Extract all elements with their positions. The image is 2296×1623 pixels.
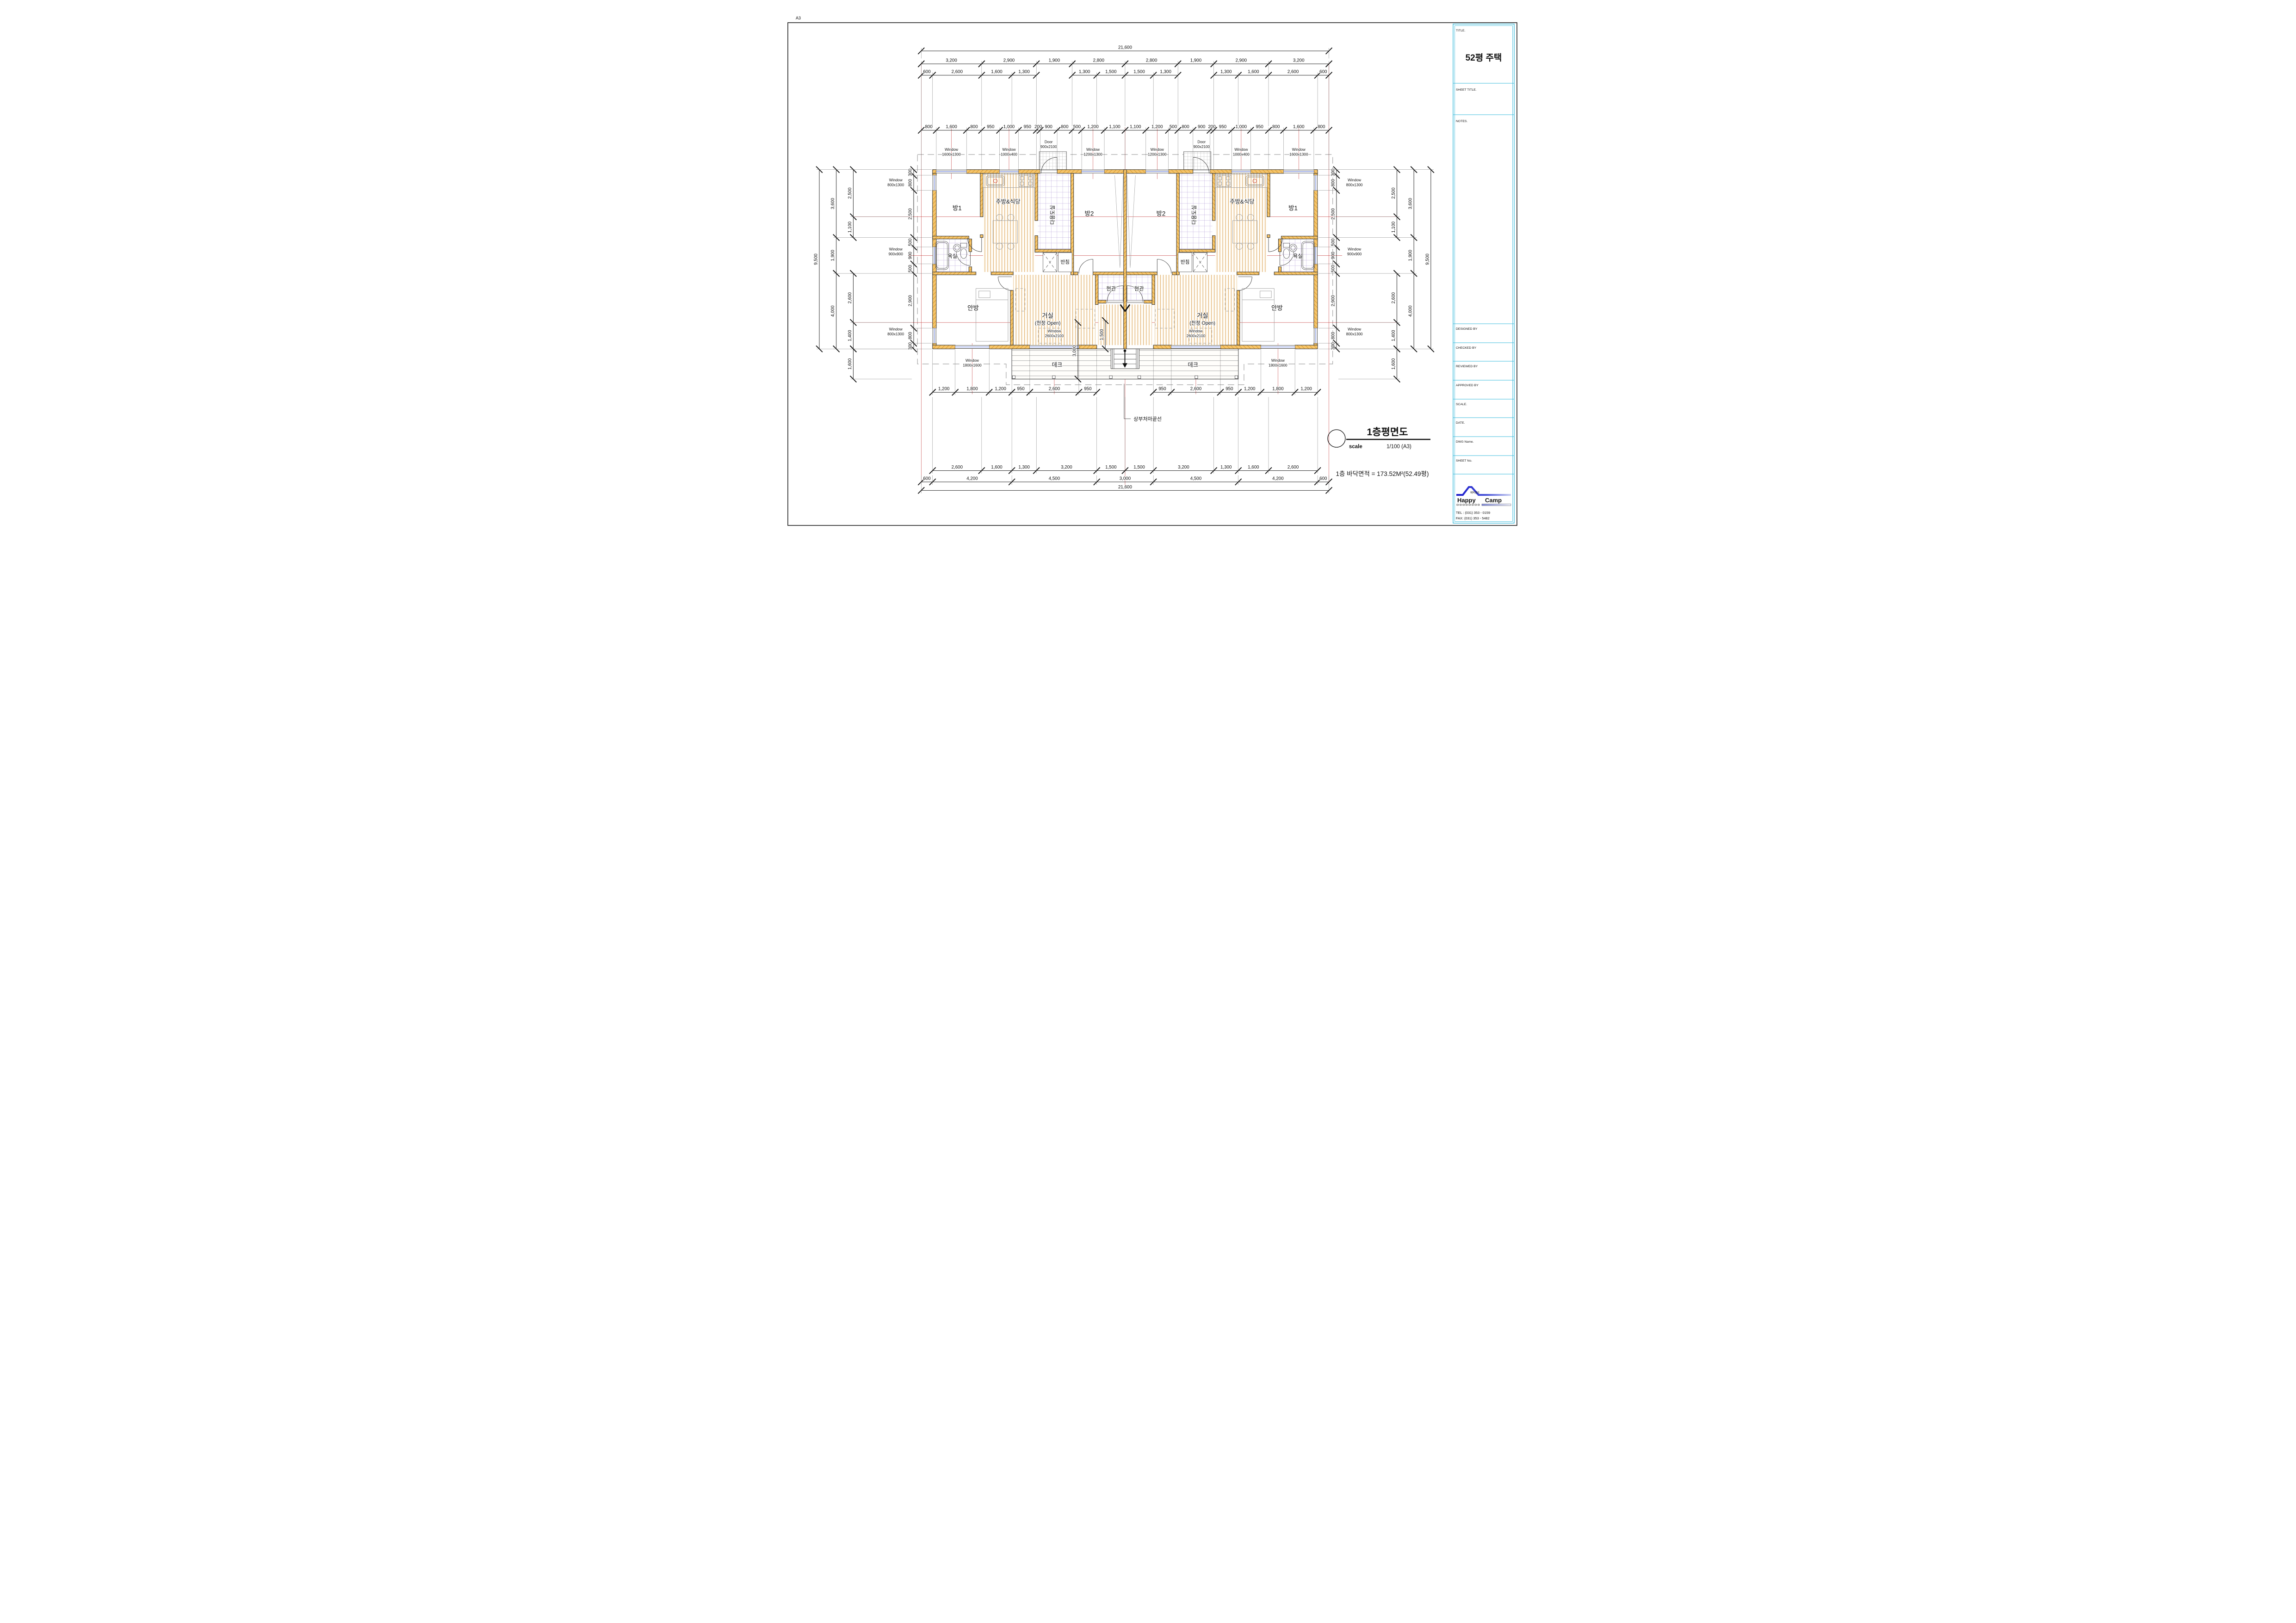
dim-label: 1,600 <box>946 124 957 130</box>
dim-label: 800 <box>1318 124 1325 130</box>
dim-label: 3,200 <box>1061 465 1072 470</box>
dim-label: 2,500 <box>1391 187 1396 199</box>
dim-label: 800 <box>970 124 978 130</box>
plan-label: 현관 <box>1106 286 1116 292</box>
dim-label: 1,600 <box>848 358 853 370</box>
plan-label: Window <box>1189 329 1202 333</box>
plan-label: 800x1300 <box>1346 183 1363 187</box>
plan-label: Window <box>945 148 958 152</box>
paper-size-label: A3 <box>796 16 801 20</box>
plan-label: 현관 <box>1134 286 1144 292</box>
dim-row: 21,600 <box>918 484 1332 494</box>
dim-label: 300 <box>908 168 913 176</box>
dim-label: 1,100 <box>1109 124 1120 130</box>
dim-label: 1,300 <box>1220 465 1232 470</box>
logo-kr: 해피캠프 <box>1470 491 1479 494</box>
dim-label: 300 <box>908 342 913 350</box>
plan-label: Window <box>1234 148 1248 152</box>
deck <box>1012 349 1238 379</box>
dim-label: 800 <box>1061 124 1069 130</box>
plan-label: 2600x2100 <box>1187 334 1206 338</box>
dim-label: 2,600 <box>848 292 853 303</box>
dim-label: 1,600 <box>1293 124 1305 130</box>
plan-label: 방2 <box>1157 210 1166 217</box>
sheet-no-label: SHEET No. <box>1456 459 1472 463</box>
reviewed-by-label: REVIEWED BY <box>1456 365 1478 368</box>
dim-label: 600 <box>1319 69 1327 74</box>
dim-label: 800 <box>1182 124 1189 130</box>
back-landing <box>1039 152 1066 170</box>
plan-label: 거실 <box>1042 312 1053 319</box>
dim-row: 2,5001,100 <box>1338 167 1400 241</box>
dim-row: 1,3001,5001,5001,300 <box>1069 69 1181 126</box>
plan-label: Window <box>1292 148 1306 152</box>
plan-label: Window <box>889 178 903 182</box>
dim-label: 800 <box>1272 124 1280 130</box>
dim-label: 2,600 <box>952 465 963 470</box>
dim-label: 2,600 <box>1287 69 1299 74</box>
dim-row: 1,600 <box>1338 346 1400 382</box>
plan-label: Window <box>1271 358 1285 363</box>
plan-title: 1층평면도 <box>1367 427 1408 438</box>
plan-label: 욕실 <box>947 253 957 259</box>
dim-label: 2,900 <box>908 295 913 306</box>
plan-label: 1000x400 <box>1233 153 1250 157</box>
dim-label: 2,900 <box>1236 58 1247 63</box>
plan-label: Door <box>1197 140 1206 144</box>
plan-label: Window <box>1047 329 1061 333</box>
dim-label: 500 <box>1331 238 1336 246</box>
designed-by-label: DESIGNED BY <box>1456 327 1478 331</box>
logo-dashes <box>1457 504 1479 506</box>
dim-label: 800 <box>1331 332 1336 339</box>
dim-label: 2,800 <box>1146 58 1157 63</box>
dim-label: 1,100 <box>848 221 853 233</box>
dim-label: 2,600 <box>1287 465 1299 470</box>
dim-label: 1,200 <box>995 387 1006 392</box>
dim-label: 950 <box>1225 387 1233 392</box>
dwg-name-label: DWG Name. <box>1456 440 1474 444</box>
dim-label: 950 <box>987 124 995 130</box>
plan-label: Window <box>889 327 903 331</box>
plan-label: 다용도실 <box>1191 205 1197 225</box>
dim-label: 4,500 <box>1190 476 1202 481</box>
plan-label: 주방&식당 <box>996 198 1020 205</box>
dim-label: 4,200 <box>1272 476 1284 481</box>
unit-right <box>1125 152 1318 349</box>
dim-label: 200 <box>1208 124 1216 130</box>
plan-label: 900x900 <box>1347 252 1362 256</box>
kitchen-floor <box>983 173 1035 272</box>
scale-value: 1/100 (A3) <box>1386 444 1411 450</box>
plan-label: 1000x400 <box>1001 153 1017 157</box>
dim-label: 2,600 <box>1190 387 1202 392</box>
dim-label: 1,900 <box>1049 58 1060 63</box>
sheet-title-label: SHEET TITLE. <box>1456 88 1477 92</box>
plan-label: 방1 <box>1288 204 1298 211</box>
dim-label: 1,300 <box>1018 69 1030 74</box>
date-row-label: DATE. <box>1456 421 1465 425</box>
checked-by-label: CHECKED BY <box>1456 346 1477 350</box>
dim-label: 1,600 <box>991 69 1003 74</box>
dim-label: 2,900 <box>1331 295 1336 306</box>
plan-label: Window <box>1348 247 1361 251</box>
dim-label: 3,200 <box>1178 465 1189 470</box>
dim-label: 1,900 <box>1190 58 1202 63</box>
plan-label: 방2 <box>1084 210 1094 217</box>
dim-label: 2,600 <box>952 69 963 74</box>
dim-label: 1,200 <box>938 387 950 392</box>
dim-row: 1,3001,6002,600600 <box>1211 69 1332 126</box>
plan-label: 800x1300 <box>887 183 904 187</box>
dim-label: 1,600 <box>1248 465 1259 470</box>
plan-label: 900x2100 <box>1040 145 1057 149</box>
dim-label: 2,600 <box>1391 292 1396 303</box>
title-label: TITLE. <box>1456 29 1466 32</box>
plan-label: 방1 <box>953 204 962 211</box>
dim-label: 1,600 <box>1248 69 1259 74</box>
dim-label: 1,200 <box>1151 124 1163 130</box>
dim-label: 9,500 <box>813 253 818 265</box>
dim-label: 4,500 <box>1049 476 1060 481</box>
dim-label: 1,800 <box>966 387 978 392</box>
plan-label: 1600x1300 <box>1289 153 1308 157</box>
dim-label: 1,900 <box>830 250 835 261</box>
dim-label: 950 <box>1024 124 1032 130</box>
dim-label: 1,500 <box>1100 329 1105 340</box>
plan-label: 1800x1600 <box>963 364 982 368</box>
dim-label: 1,300 <box>1220 69 1232 74</box>
plan-label: 거실 <box>1197 312 1208 319</box>
dim-label: 1,200 <box>1244 387 1256 392</box>
dim-row: 8001,6008009501,0009502009008005001,2001… <box>918 124 1332 169</box>
scale-label: scale <box>1349 444 1362 450</box>
dim-label: 500 <box>908 265 913 272</box>
dim-label: 1,900 <box>1408 250 1413 261</box>
plan-label: Window <box>1348 327 1361 331</box>
dim-label: 1,800 <box>1272 387 1284 392</box>
floor-area-text: 1층 바닥면적 = 173.52M²(52.49평) <box>1336 470 1429 477</box>
dim-label: 3,600 <box>1408 197 1413 209</box>
plan-label: Window <box>1348 178 1361 182</box>
title-bubble <box>1328 430 1345 447</box>
dim-label: 950 <box>1017 387 1025 392</box>
dim-label: 1,100 <box>1391 221 1396 233</box>
dim-label: 1,300 <box>1160 69 1171 74</box>
plan-label: 800x1300 <box>1346 332 1363 336</box>
plan-label: 안방 <box>967 305 979 312</box>
dim-label: 900 <box>1045 124 1053 130</box>
dim-label: 950 <box>1256 124 1263 130</box>
company-logo: 해피캠프 Happy Camp TEL : (031) 353 - 0159 F… <box>1456 487 1511 520</box>
dim-label: 800 <box>908 332 913 339</box>
drawing-sheet: A3 <box>765 0 1531 541</box>
fax-text: FAX: (031) 353 - 5482 <box>1456 516 1490 520</box>
plan-label: Window <box>1086 148 1100 152</box>
dim-label: 800 <box>1331 179 1336 187</box>
dim-label: 1,500 <box>1133 69 1145 74</box>
dim-label: 4,000 <box>830 305 835 317</box>
plan-title-block: 1층평면도 scale 1/100 (A3) 1층 바닥면적 = 173.52M… <box>1328 427 1430 477</box>
plan-label: 2600x2100 <box>1045 334 1064 338</box>
dim-label: 950 <box>1219 124 1227 130</box>
dim-row: 3,2002,9001,9002,8002,8001,9002,9003,200 <box>918 58 1332 74</box>
plan-label: 주방&식당 <box>1230 198 1254 205</box>
dim-label: 950 <box>1084 387 1092 392</box>
logo-word1: Happy <box>1457 497 1476 504</box>
plan-label: 데크 <box>1188 362 1199 368</box>
dim-row: 3008002,5005009005002,900800300 <box>1318 167 1340 352</box>
dim-label: 900 <box>1331 252 1336 259</box>
plan-label: (천정 Open) <box>1190 321 1215 326</box>
dim-label: 2,500 <box>908 208 913 220</box>
plan-label: Window <box>1151 148 1164 152</box>
dim-label: 9,500 <box>1425 253 1430 265</box>
plan-label: 반침 <box>1181 259 1190 265</box>
dim-row: 2,5001,100 <box>848 167 912 241</box>
dim-row: 1,600 <box>848 346 912 382</box>
plan-label: (천정 Open) <box>1035 321 1060 326</box>
dim-label: 1,500 <box>1133 465 1145 470</box>
dim-label: 1,000 <box>1003 124 1015 130</box>
dim-label: 21,600 <box>1118 485 1132 490</box>
plan-label: Window <box>965 358 979 363</box>
dim-label: 2,600 <box>1049 387 1060 392</box>
party-wall <box>1124 170 1126 349</box>
dim-label: 3,600 <box>830 197 835 209</box>
dim-label: 3,200 <box>946 58 957 63</box>
dim-row: 6002,6001,6001,300 <box>918 69 1040 126</box>
wardrobe-mark <box>1115 175 1123 268</box>
dim-label: 1,000 <box>1236 124 1247 130</box>
plan-label: 안방 <box>1271 305 1283 312</box>
floor-plan-svg: A3 <box>765 0 1531 541</box>
plan-label: 900x900 <box>889 252 904 256</box>
dim-label: 3,000 <box>1072 345 1077 357</box>
dim-label: 600 <box>1319 476 1327 481</box>
dim-label: 1,300 <box>1018 465 1030 470</box>
plan-label: Window <box>889 247 903 251</box>
dim-label: 2,900 <box>1003 58 1015 63</box>
plan-label: 1200x1300 <box>1083 153 1102 157</box>
dim-label: 4,200 <box>966 476 978 481</box>
logo-bar <box>1482 504 1511 506</box>
dim-label: 1,200 <box>1300 387 1312 392</box>
dim-row: 9,500 <box>1416 167 1434 352</box>
tel-text: TEL : (031) 353 - 0159 <box>1456 511 1490 515</box>
plan-label: 900x2100 <box>1193 145 1210 149</box>
dim-label: 600 <box>923 69 931 74</box>
plan-label: 800x1300 <box>887 332 904 336</box>
dim-label: 200 <box>1034 124 1042 130</box>
dim-label: 300 <box>1331 168 1336 176</box>
dim-label: 1,400 <box>848 330 853 341</box>
plan-label: 1200x1300 <box>1148 153 1167 157</box>
dim-label: 800 <box>925 124 933 130</box>
plan-label: 다용도실 <box>1050 205 1056 225</box>
dim-row: 2,6001,400 <box>848 270 912 352</box>
plan-label: 반침 <box>1060 259 1070 265</box>
dim-label: 1,500 <box>1105 465 1117 470</box>
approved-by-label: APPROVED BY <box>1456 384 1479 387</box>
title-panel: TITLE. 52평 주택 SHEET TITLE. NOTES. DESIGN… <box>1453 24 1514 523</box>
dim-row: 3008002,5005009005002,900800300 <box>908 167 931 352</box>
plan-label: Window <box>1003 148 1016 152</box>
dim-row: 2,6001,6001,3003,2001,5001,5003,2001,300… <box>929 397 1321 474</box>
dim-label: 950 <box>1158 387 1166 392</box>
unit-left <box>933 152 1125 349</box>
dim-label: 500 <box>1170 124 1177 130</box>
plan-label: 1800x1600 <box>1269 364 1287 368</box>
logo-roof-icon <box>1456 487 1511 495</box>
dim-label: 1,300 <box>1079 69 1090 74</box>
dim-label: 1,600 <box>1391 358 1396 370</box>
dim-row: 21,600 <box>918 45 1332 59</box>
dim-row: 2,6001,400 <box>1338 270 1400 352</box>
dim-label: 500 <box>908 238 913 246</box>
plan-area: 21,6003,2002,9001,9002,8002,8001,9002,90… <box>813 45 1434 494</box>
dim-label: 1,400 <box>1391 330 1396 341</box>
dim-label: 300 <box>1331 342 1336 350</box>
dim-label: 1,600 <box>991 465 1003 470</box>
logo-word2: Camp <box>1485 497 1502 504</box>
plan-label: 상부처마끝선 <box>1133 416 1162 422</box>
project-title: 52평 주택 <box>1466 53 1502 63</box>
dim-label: 4,000 <box>1408 305 1413 317</box>
dim-label: 2,500 <box>1331 208 1336 220</box>
dim-label: 600 <box>923 476 931 481</box>
plan-label: 1600x1300 <box>942 153 961 157</box>
dim-label: 1,100 <box>1130 124 1141 130</box>
dim-label: 1,200 <box>1087 124 1099 130</box>
dim-label: 1,500 <box>1105 69 1117 74</box>
notes-label: NOTES. <box>1456 120 1467 123</box>
dim-label: 2,500 <box>848 187 853 199</box>
dim-label: 900 <box>908 252 913 259</box>
dim-label: 500 <box>1073 124 1081 130</box>
dim-label: 3,200 <box>1293 58 1305 63</box>
plan-label: Door <box>1045 140 1053 144</box>
dim-label: 21,600 <box>1118 45 1132 50</box>
plan-label: 데크 <box>1052 362 1063 368</box>
scale-row-label: SCALE. <box>1456 403 1467 406</box>
dim-label: 500 <box>1331 265 1336 272</box>
dim-label: 3,000 <box>1120 476 1131 481</box>
dim-label: 900 <box>1198 124 1206 130</box>
dim-label: 2,800 <box>1093 58 1105 63</box>
dim-label: 800 <box>908 179 913 187</box>
plan-label: 욕실 <box>1293 253 1303 259</box>
